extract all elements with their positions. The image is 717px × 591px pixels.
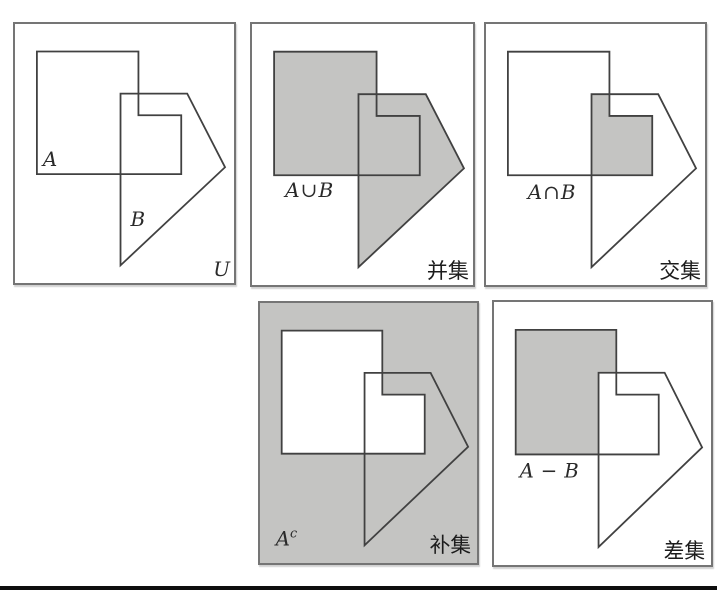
intersection-diagram: A∩B 交集 (486, 24, 705, 285)
panel-universe: A B U (13, 22, 236, 285)
difference-shaded-region (516, 330, 617, 455)
intersection-shaded-region (592, 94, 653, 175)
panel-difference: A−B 差集 (492, 300, 713, 567)
label-difference-expression: A−B (518, 459, 579, 482)
label-intersection-expression: A∩B (526, 181, 576, 204)
panel-union: A∪B 并集 (250, 22, 475, 287)
caption-difference: 差集 (664, 539, 706, 563)
union-diagram: A∪B 并集 (252, 24, 473, 285)
panel-intersection: A∩B 交集 (484, 22, 707, 287)
set-b-outline (599, 373, 703, 547)
label-union-expression: A∪B (283, 179, 333, 202)
label-set-a: A (41, 148, 57, 171)
bottom-rule (0, 586, 717, 590)
label-set-b: B (129, 208, 145, 231)
complement-diagram: Ac 补集 (260, 303, 477, 563)
set-a-outline (37, 51, 181, 174)
set-operations-figure: A B U A∪B 并集 A∩B 交集 (0, 0, 717, 591)
caption-intersection: 交集 (659, 259, 701, 283)
difference-diagram: A−B 差集 (494, 302, 711, 565)
union-shaded-region (274, 52, 464, 268)
set-b-outline (121, 94, 226, 266)
caption-complement: 补集 (430, 533, 472, 557)
caption-union: 并集 (427, 259, 469, 283)
label-universe-u: U (213, 258, 231, 281)
panel-complement: Ac 补集 (258, 301, 479, 565)
universe-diagram: A B U (15, 24, 234, 283)
